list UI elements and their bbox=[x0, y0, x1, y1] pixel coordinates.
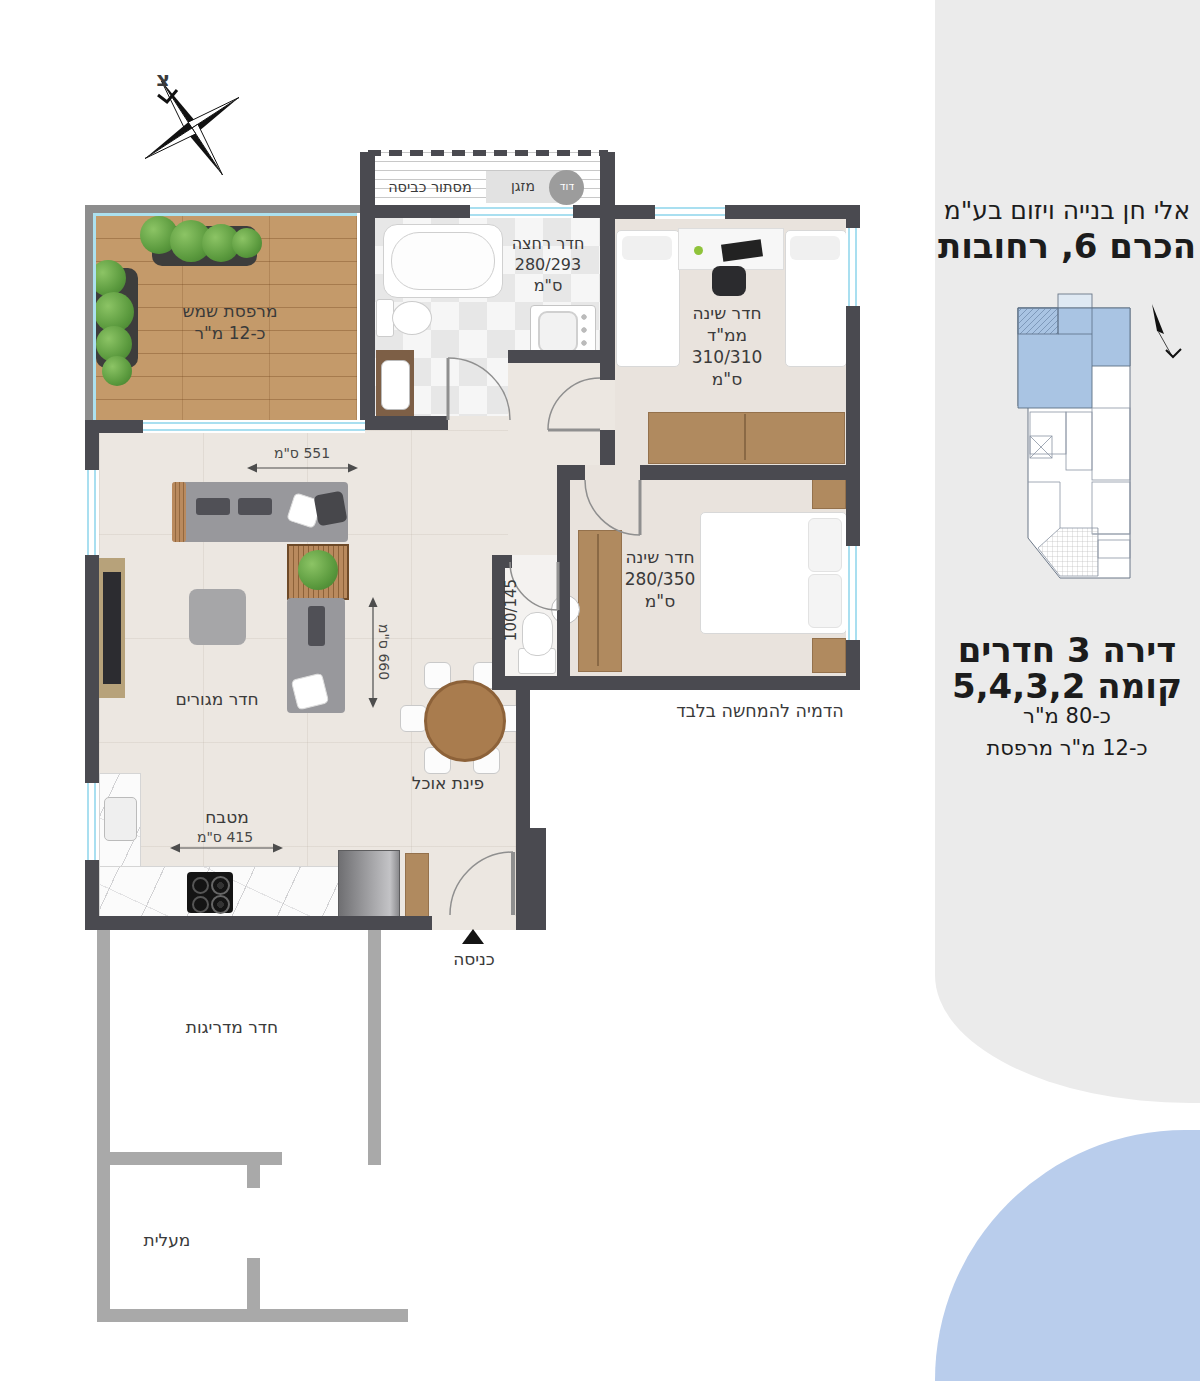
balcony-railing-left bbox=[85, 205, 93, 428]
cooktop-burner bbox=[192, 877, 209, 894]
bedroom-label: חדר שינה 280/350 ס"מ bbox=[625, 546, 696, 612]
wall bbox=[558, 555, 570, 568]
kitchen-dim-label: 415 ס"מ bbox=[197, 828, 253, 846]
desk-item bbox=[694, 246, 703, 255]
wardrobe bbox=[648, 412, 845, 464]
ac-label: מזגן bbox=[511, 177, 535, 195]
entrance-label: כניסה bbox=[453, 948, 495, 970]
stair-wall bbox=[97, 930, 110, 1322]
apartment-floors: קומה 5,4,3,2 bbox=[952, 666, 1182, 706]
stairwell-label: חדר מדריגות bbox=[186, 1016, 278, 1038]
project-address: הכרם 6, רחובות bbox=[938, 226, 1196, 266]
wardrobe-divider bbox=[597, 534, 599, 666]
toilet-bowl bbox=[522, 612, 553, 656]
dining-table bbox=[424, 680, 506, 762]
wall bbox=[360, 205, 470, 218]
wall bbox=[516, 828, 546, 930]
apartment-balcony-area: כ-12 מ"ר מרפסת bbox=[986, 736, 1147, 760]
desk-chair bbox=[712, 266, 746, 296]
stair-wall bbox=[368, 930, 381, 1165]
wall bbox=[85, 860, 99, 916]
bathroom-sink bbox=[381, 360, 410, 410]
plant bbox=[298, 550, 338, 590]
kitchen-sink bbox=[104, 797, 137, 841]
hallway-floor-lower bbox=[508, 480, 557, 555]
laundry-open-edge bbox=[368, 150, 608, 156]
toilet-bowl bbox=[392, 301, 432, 335]
wall bbox=[85, 555, 99, 783]
door-gap bbox=[600, 380, 615, 430]
throw-pillow bbox=[314, 491, 348, 527]
compass-north-label: צ bbox=[156, 66, 170, 93]
window bbox=[470, 205, 573, 218]
nightstand bbox=[812, 638, 846, 673]
stair-wall bbox=[247, 1165, 260, 1188]
door-gap bbox=[585, 465, 640, 480]
boiler-label: דוד bbox=[560, 180, 574, 194]
window bbox=[85, 783, 99, 860]
wall bbox=[600, 430, 615, 465]
cooktop-burner bbox=[211, 876, 230, 895]
door-gap bbox=[512, 555, 558, 568]
washing-machine-knobs bbox=[581, 312, 587, 348]
living-room-label: חדר מגורים bbox=[175, 688, 258, 710]
wall bbox=[508, 350, 600, 363]
entry-cabinet bbox=[405, 853, 429, 917]
stair-wall bbox=[110, 1152, 282, 1165]
pillow bbox=[808, 518, 842, 572]
wall bbox=[492, 676, 860, 690]
door-gap bbox=[432, 916, 516, 930]
wall bbox=[85, 430, 99, 470]
cooktop-burner bbox=[211, 895, 230, 914]
wardrobe-divider bbox=[744, 414, 746, 460]
wall bbox=[557, 480, 570, 676]
laundry-label: מסתור כביסה bbox=[388, 178, 472, 197]
window bbox=[846, 228, 860, 306]
hallway-floor bbox=[508, 363, 600, 480]
living-height-label: 660 ס"מ bbox=[375, 624, 393, 680]
stair-wall bbox=[97, 1309, 408, 1322]
bottom-blue-shape bbox=[935, 1130, 1200, 1381]
sofa-cushion bbox=[238, 498, 272, 515]
wall bbox=[600, 352, 615, 380]
balcony-glass-left bbox=[93, 213, 96, 420]
wall bbox=[600, 218, 615, 352]
balcony-railing-top bbox=[85, 205, 365, 213]
door-gap bbox=[448, 416, 510, 430]
wall bbox=[573, 205, 615, 218]
dining-chair bbox=[400, 705, 427, 732]
tv-screen bbox=[103, 572, 121, 684]
wall bbox=[375, 416, 448, 430]
balcony-sliding-door bbox=[143, 420, 365, 433]
bathtub-basin bbox=[391, 232, 495, 290]
window bbox=[85, 470, 99, 555]
sofa-cushion bbox=[196, 498, 230, 515]
sofa-cushion bbox=[308, 606, 325, 646]
disclaimer-text: הדמיה להמחשה בלבד bbox=[676, 700, 844, 723]
plant bbox=[102, 356, 132, 386]
wall bbox=[846, 205, 860, 228]
balcony-glass-top bbox=[93, 213, 357, 216]
apartment-type: דירה 3 חדרים bbox=[958, 630, 1177, 670]
elevator-label: מעלית bbox=[144, 1229, 191, 1251]
window bbox=[655, 205, 725, 219]
compass-icon bbox=[115, 51, 270, 206]
refrigerator bbox=[338, 850, 400, 918]
pillow bbox=[808, 574, 842, 628]
toilet-dim-label: 100/145 bbox=[502, 579, 522, 641]
wall bbox=[360, 218, 375, 430]
bathroom-label: חדר רחצה 280/293 ס"מ bbox=[512, 234, 585, 296]
key-plan-north-arrow bbox=[1152, 304, 1181, 357]
washing-machine-door bbox=[538, 311, 578, 353]
wall bbox=[615, 205, 655, 219]
wall bbox=[516, 676, 530, 828]
window bbox=[846, 546, 860, 640]
living-width-label: 551 ס"מ bbox=[274, 444, 330, 462]
company-name: אלי חן בנייה ויזום בע"מ bbox=[944, 196, 1190, 225]
pillow bbox=[790, 236, 840, 260]
wall bbox=[725, 205, 860, 219]
wardrobe bbox=[578, 530, 622, 672]
balcony-label: מרפסת שמש כ-12 מ"ר bbox=[182, 300, 277, 344]
cooktop-burner bbox=[192, 896, 209, 913]
wall bbox=[846, 306, 860, 546]
plant bbox=[232, 228, 262, 258]
dining-label: פינת אוכל bbox=[412, 772, 484, 794]
sofa-armrest bbox=[172, 482, 186, 542]
wall bbox=[557, 465, 585, 480]
wall bbox=[492, 555, 512, 568]
entrance-arrow-icon bbox=[462, 929, 484, 944]
kitchen-label: מטבח bbox=[205, 806, 249, 828]
ottoman bbox=[189, 589, 246, 645]
apartment-area: כ-80 מ"ר bbox=[1023, 704, 1111, 728]
mamad-bedroom-label: חדר שינה ממ"ד 310/310 ס"מ bbox=[692, 302, 763, 390]
pillow bbox=[622, 236, 672, 260]
wall bbox=[640, 465, 860, 480]
wall bbox=[85, 916, 432, 930]
key-plan bbox=[1002, 286, 1200, 596]
